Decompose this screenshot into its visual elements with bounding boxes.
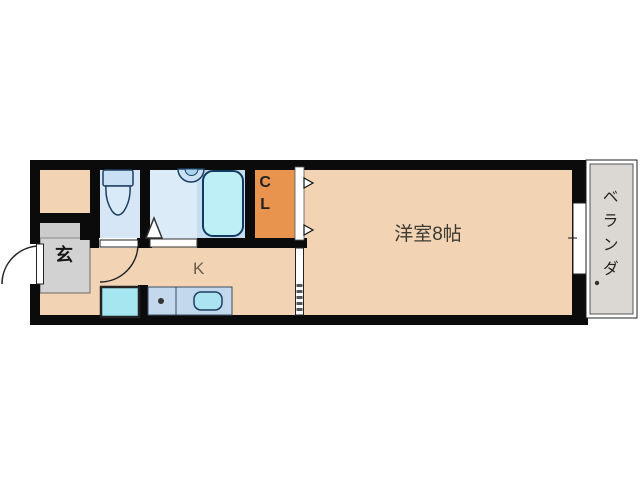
entrance-label: 玄 — [55, 246, 73, 266]
entrance-step-strip — [40, 223, 80, 238]
floor-plan-page: 洋室8帖 K 玄 CL ベランダ — [0, 0, 640, 480]
front-door-leaf — [37, 244, 44, 284]
wall-left — [30, 160, 40, 325]
stove-burner-icon — [158, 298, 164, 304]
wall-entrance-stub — [80, 215, 91, 240]
floor-plan-drawing — [0, 0, 640, 480]
wall-top — [30, 160, 588, 170]
kitchen-sink-icon — [194, 292, 222, 310]
closet-door-strip — [295, 167, 304, 240]
wall-toilet-left — [90, 160, 100, 248]
bathroom-door-band — [150, 239, 197, 247]
western-room-label: 洋室8帖 — [355, 225, 501, 246]
toilet-tank-icon — [103, 170, 133, 186]
washer-pan-icon — [101, 287, 139, 317]
bathtub-icon — [203, 171, 243, 236]
wall-bath-closet — [245, 160, 255, 248]
kitchen-label: K — [193, 260, 204, 279]
wall-under-closet — [197, 238, 307, 248]
toilet-door-leaf — [100, 240, 138, 247]
veranda-label: ベランダ — [599, 188, 617, 298]
closet-label: CL — [256, 174, 274, 230]
